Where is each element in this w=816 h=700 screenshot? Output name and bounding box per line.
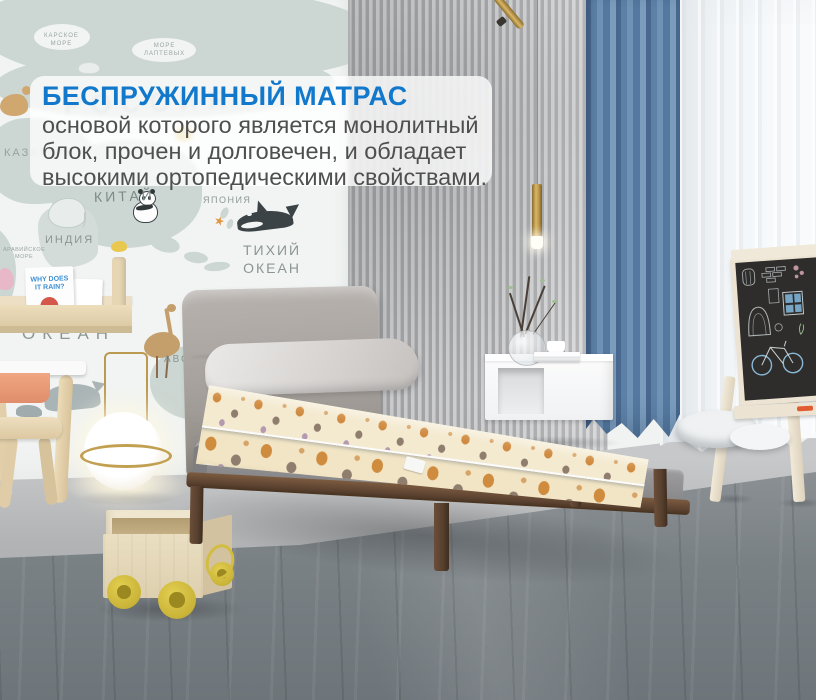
wheel-hub — [169, 592, 184, 607]
starfish-icon: ★ — [212, 213, 227, 230]
bed-leg — [434, 503, 449, 571]
bedroom-product-photo: РОССИЯ КАРСКОЕ МОРЕ МОРЕ ЛАПТЕВЫХ КАЗАХС… — [0, 0, 816, 700]
branch-leaf — [540, 279, 545, 282]
map-landmass-japan — [225, 218, 234, 229]
pendant-light-bulb — [531, 236, 543, 249]
orca-icon — [236, 208, 294, 234]
stool-seat — [0, 417, 62, 439]
bird-icon — [111, 241, 127, 252]
emu-icon — [156, 356, 158, 378]
promo-line-2: блок, прочен и долговечен, и обладает — [42, 139, 478, 164]
whale-icon — [16, 405, 42, 417]
chalkboard — [730, 252, 816, 406]
nightstand-open-shelf — [498, 368, 544, 414]
promo-title: БЕСПРУЖИННЫЙ МАТРАС — [42, 82, 478, 112]
orca-icon — [255, 199, 267, 213]
map-label-laptev-sea: МОРЕ ЛАПТЕВЫХ — [144, 43, 185, 58]
toy-cart-wheel — [107, 575, 141, 609]
map-label-karskoe-sea: КАРСКОЕ МОРЕ — [44, 33, 79, 48]
book-title: WHY DOES IT RAIN? — [25, 275, 74, 293]
map-label-china: КИТАЙ — [94, 187, 155, 207]
wheel-hub — [117, 585, 131, 599]
map-label-japan: ЯПОНИЯ — [203, 195, 251, 206]
map-label-pacific-ocean: ТИХИЙ ОКЕАН — [243, 242, 301, 277]
map-landmass-sea-asia — [183, 250, 208, 264]
bed-leg — [653, 469, 667, 527]
sheer-curtain-pool — [730, 424, 790, 450]
bed-pillow — [204, 337, 420, 396]
branch-leaf — [552, 300, 557, 303]
bed-leg — [189, 486, 203, 544]
floor-lamp-brass-ring — [80, 444, 172, 468]
promo-line-3: высокими ортопедическими свойствами. — [42, 165, 478, 190]
chalk-stick — [797, 406, 813, 412]
chalk-doodles — [735, 258, 815, 391]
map-landmass-sea-asia — [148, 232, 181, 255]
kids-table-tray — [0, 373, 50, 403]
promo-text-overlay: БЕСПРУЖИННЫЙ МАТРАС основой которого явл… — [30, 76, 492, 186]
wall-shelf-lip — [0, 326, 132, 333]
emu-icon — [167, 304, 176, 312]
deer-icon — [0, 94, 28, 116]
map-label-india: ИНДИЯ — [45, 234, 94, 248]
wall-shelf-rail — [0, 305, 132, 326]
map-label-arabian-sea: АРАВИЙСКОЕ МОРЕ — [3, 247, 45, 261]
pendant-cord — [537, 0, 538, 186]
polar-bear-icon — [78, 62, 100, 74]
lamp-shadow — [80, 490, 176, 506]
books-stack — [534, 352, 580, 362]
pendant-light — [532, 184, 542, 237]
map-landmass-sea-asia — [204, 261, 231, 273]
branch-leaf — [508, 286, 513, 289]
promo-line-1: основой которого является монолитный — [42, 113, 478, 138]
toy-cart-wheel — [158, 581, 196, 619]
